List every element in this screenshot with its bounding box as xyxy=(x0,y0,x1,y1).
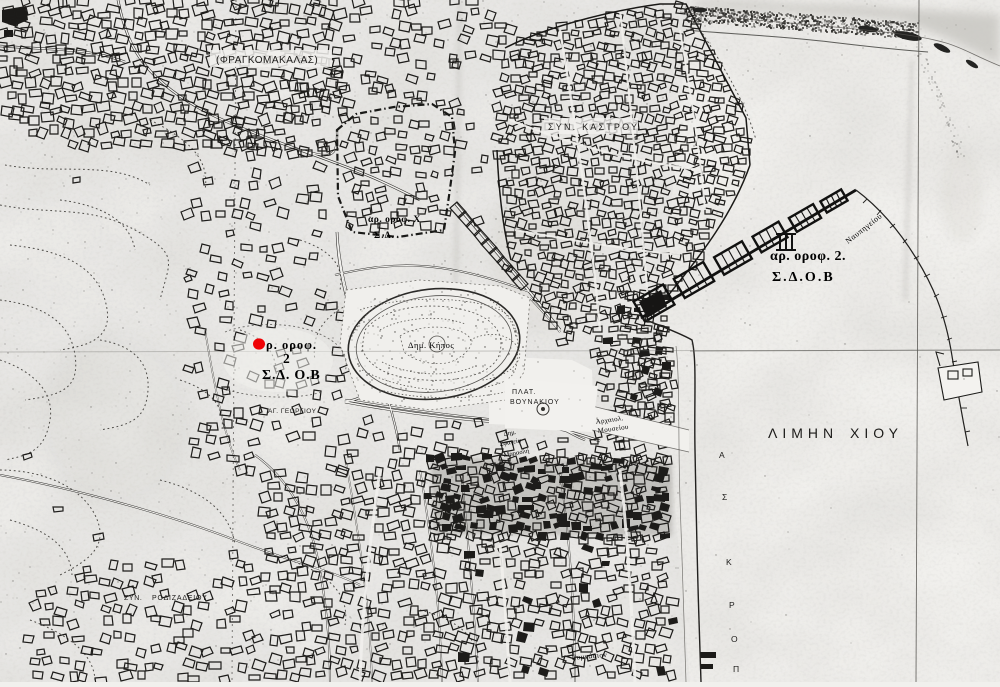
svg-text:2: 2 xyxy=(283,351,290,366)
svg-text:ΛΙΜΗΝ: ΛΙΜΗΝ xyxy=(768,425,838,441)
svg-text:Α: Α xyxy=(719,450,725,460)
svg-text:Π: Π xyxy=(733,664,739,674)
svg-text:ΑΓ. ΓΕΩΡΓΙΟΥ: ΑΓ. ΓΕΩΡΓΙΟΥ xyxy=(268,408,317,415)
svg-text:ΡΟΔΙΖΑΔΕΙΟΥ: ΡΟΔΙΖΑΔΕΙΟΥ xyxy=(152,595,208,602)
svg-text:(ΦΡΑΓΚΟΜΑΚΑΛΑΣ): (ΦΡΑΓΚΟΜΑΚΑΛΑΣ) xyxy=(216,55,318,66)
svg-text:Σ.Δ.Ο.Β: Σ.Δ.Ο.Β xyxy=(772,270,835,285)
svg-text:αρ. οροφ. 2.: αρ. οροφ. 2. xyxy=(770,249,846,264)
svg-text:Ο: Ο xyxy=(731,634,738,644)
svg-text:αρ. οροφ. Χ: αρ. οροφ. Χ xyxy=(368,215,421,225)
svg-text:Ρ: Ρ xyxy=(729,600,735,610)
svg-text:ΧΙΟΥ: ΧΙΟΥ xyxy=(850,425,903,441)
svg-text:ΣΥΝ. ΚΑΣΤΡΟΥ: ΣΥΝ. ΚΑΣΤΡΟΥ xyxy=(548,122,639,132)
svg-text:Κ: Κ xyxy=(726,557,732,567)
svg-text:ρ. οροφ.: ρ. οροφ. xyxy=(266,338,317,352)
svg-text:Σ: Σ xyxy=(722,492,727,502)
svg-text:Σ.Δ.: Σ.Δ. xyxy=(374,231,395,241)
svg-text:Σ.Δ. Ο.Β: Σ.Δ. Ο.Β xyxy=(262,368,321,383)
svg-text:Δημ. Κήπος: Δημ. Κήπος xyxy=(408,340,454,350)
svg-text:ΒΟΥΝΑΚΙΟΥ: ΒΟΥΝΑΚΙΟΥ xyxy=(510,399,560,406)
svg-text:ΣΥΝ.: ΣΥΝ. xyxy=(124,595,142,602)
svg-text:ΠΛΑΤ.: ΠΛΑΤ. xyxy=(512,389,536,396)
